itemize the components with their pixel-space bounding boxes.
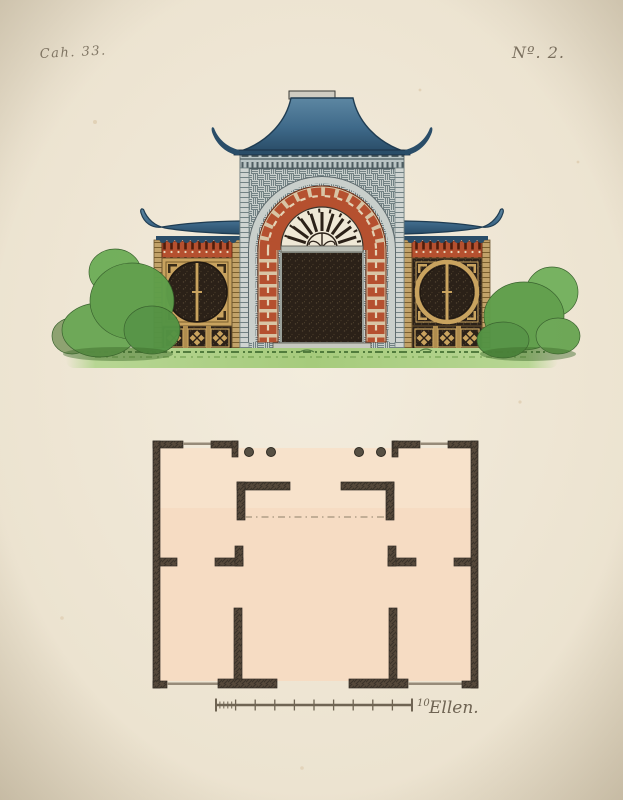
plate-drawing: 10 Ellen. Cah. 33. Nº. 2. [0, 0, 623, 800]
engraved-plate: 10 Ellen. Cah. 33. Nº. 2. [0, 0, 623, 800]
edge-vignette [0, 0, 623, 800]
